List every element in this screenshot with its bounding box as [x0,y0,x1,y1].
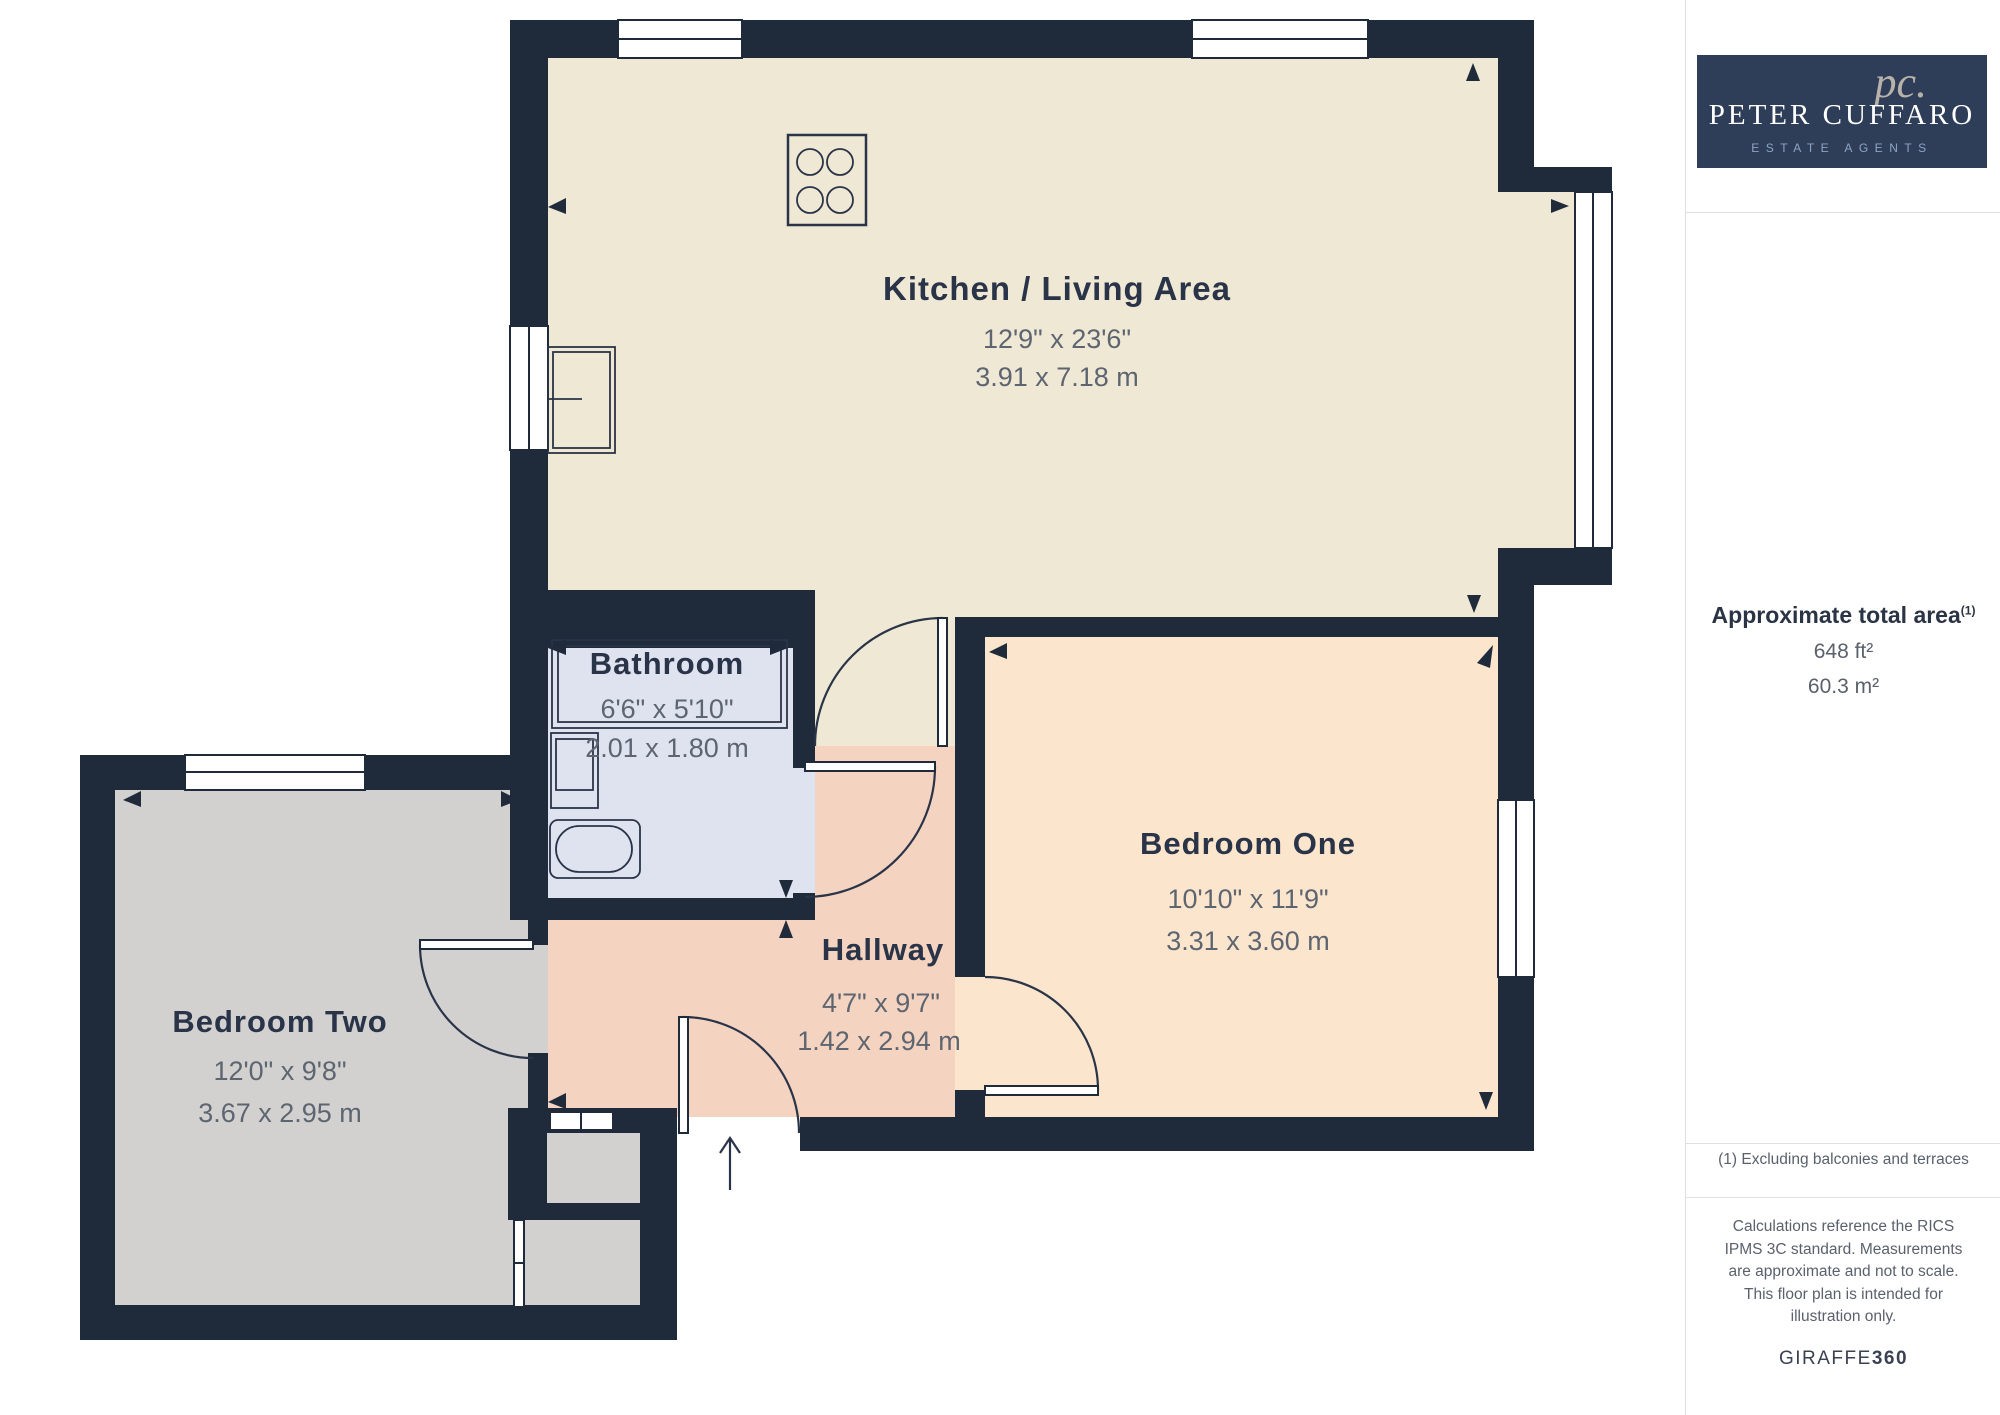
wall-bedroom-two-bottom [80,1305,677,1340]
agency-name: PETER CUFFARO [1697,99,1987,132]
total-area-title-text: Approximate total area [1712,602,1961,628]
floorplan-page: { "theme": { "wall_color": "#1f2b3a", "p… [0,0,2000,1415]
divider [1686,1197,2000,1198]
wall-right-upper [1498,585,1534,800]
bedroom-one-floor [985,637,1498,1117]
threshold-bathroom [793,768,815,893]
kitchen-size-imperial: 12'9" x 23'6" [983,324,1131,354]
wall-closet-left [508,1133,547,1203]
door-leaf-kitchen-hallway [938,618,947,746]
hallway-size-imperial: 4'7" x 9'7" [822,988,940,1018]
bathroom-size-imperial: 6'6" x 5'10" [600,694,733,724]
door-leaf-bedroom-one [985,1086,1098,1095]
door-leaf-bedroom-two [420,940,533,949]
divider [1686,1143,2000,1144]
info-sidebar: pc. PETER CUFFARO ESTATE AGENTS Approxim… [1685,0,2000,1415]
wall-top-right-step [1534,167,1612,192]
closet-one-floor [547,1133,640,1203]
agency-tagline: ESTATE AGENTS [1697,141,1987,155]
wall-bathroom-bottom [528,898,815,920]
kitchen-size-metric: 3.91 x 7.18 m [975,362,1139,392]
divider [1686,212,2000,213]
wall-bedroom-two-east-b [528,1053,548,1115]
disclaimer-text: Calculations reference the RICS IPMS 3C … [1714,1216,1973,1329]
brand-suffix: 360 [1872,1348,1908,1369]
bedroom-one-label: Bedroom One [1140,826,1356,861]
bedroom-one-size-imperial: 10'10" x 11'9" [1167,884,1328,914]
bedroom-two-size-imperial: 12'0" x 9'8" [213,1056,346,1086]
giraffe360-brand: GIRAFFE360 [1686,1348,2000,1370]
wall-bedroom-one-west-stub [955,1090,985,1117]
wall-top-right-column [1498,20,1534,192]
bedroom-two-label: Bedroom Two [172,1004,387,1039]
total-area-metric: 60.3 m² [1686,675,2000,699]
entrance-arrow-icon [720,1138,740,1190]
bedroom-two-size-metric: 3.67 x 2.95 m [198,1098,362,1128]
wall-closet-mid [508,1203,645,1220]
total-area-imperial: 648 ft² [1686,640,2000,664]
total-area-block: Approximate total area(1) 648 ft² 60.3 m… [1686,602,2000,699]
wall-left-lower [510,450,548,920]
door-leaf-bathroom [805,762,935,771]
threshold-bedroom-two [528,945,548,1053]
bathroom-size-metric: 2.01 x 1.80 m [585,733,749,763]
bedroom-one-size-metric: 3.31 x 3.60 m [1166,926,1330,956]
agency-logo: pc. PETER CUFFARO ESTATE AGENTS [1697,55,1987,168]
kitchen-label: Kitchen / Living Area [883,270,1231,307]
hallway-label: Hallway [822,932,944,967]
wall-bedroom-two-left [80,755,115,1340]
bathroom-label: Bathroom [590,646,744,681]
closet-two-floor [524,1220,640,1307]
bathroom-floor [548,648,793,898]
wall-bottom-right [800,1117,1534,1151]
bedroom-two-floor [115,790,528,1305]
wall-closet-right [640,1108,677,1340]
hallway-size-metric: 1.42 x 2.94 m [797,1026,961,1056]
door-leaf-entrance [679,1017,688,1133]
wall-bathroom-right [793,648,815,768]
total-area-title: Approximate total area(1) [1686,602,2000,629]
total-area-reference: (1) [1961,603,1976,617]
wall-under-window-right [1498,548,1612,585]
wall-bedroom-one-top [955,617,1498,637]
wall-bedroom-one-west [955,637,985,977]
brand-name: GIRAFFE [1779,1348,1872,1369]
wall-left-upper [510,20,548,326]
area-footnote: (1) Excluding balconies and terraces [1686,1151,2000,1169]
